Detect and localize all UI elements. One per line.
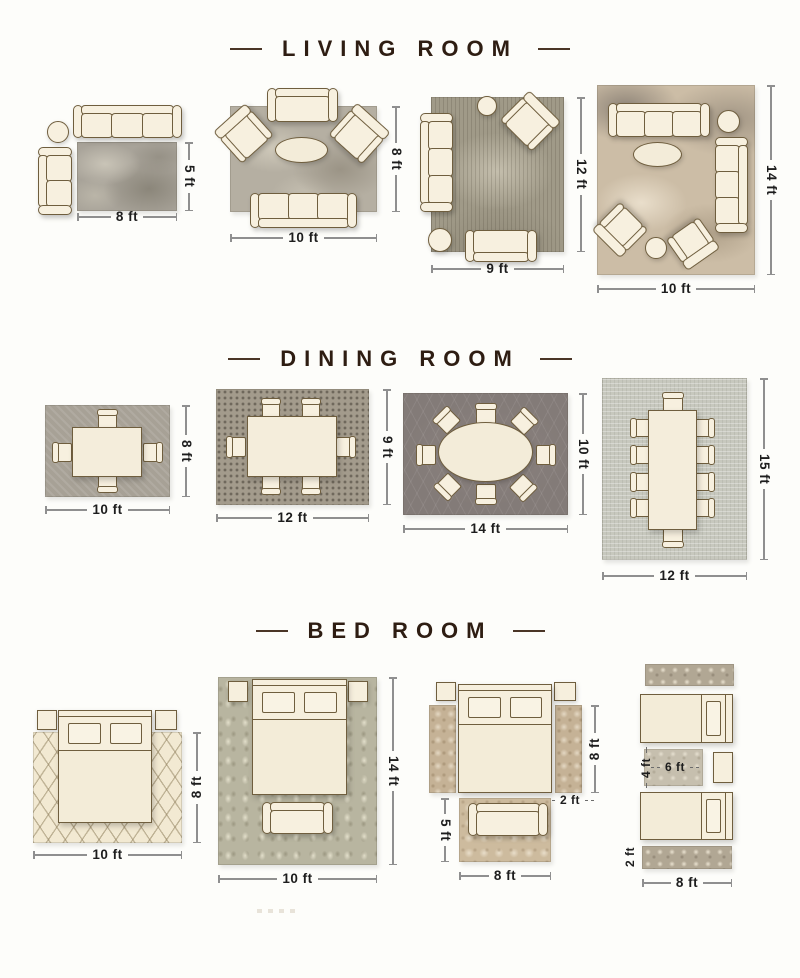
width-dimension: 12 ft: [602, 569, 747, 583]
width-dimension-label: 8 ft: [111, 210, 143, 224]
foot-rug-height-label: 5 ft: [438, 814, 452, 846]
nightstand: [37, 710, 57, 730]
width-dimension: 10 ft: [230, 231, 377, 245]
height-dimension-label: 14 ft: [764, 160, 778, 200]
width-dimension: 8 ft: [642, 876, 732, 890]
dining-chair: [262, 475, 280, 491]
dining-layout-14x10: 10 ft 14 ft: [400, 385, 595, 540]
width-dimension-label: 8 ft: [489, 869, 521, 883]
width-dimension: 14 ft: [403, 522, 568, 536]
dining-chair: [302, 475, 320, 491]
title-dash-right: [540, 358, 572, 361]
dining-layout-10x8: 8 ft 10 ft: [35, 395, 207, 525]
bed: [58, 710, 152, 823]
oval-dining-table: [438, 422, 533, 482]
living-layout-10x8: 8 ft 10 ft: [215, 85, 410, 250]
dining-chair: [336, 437, 352, 457]
height-dimension-label: 12 ft: [574, 154, 588, 194]
loveseat: [465, 230, 537, 262]
bed: [458, 684, 552, 793]
pillow: [510, 697, 543, 718]
height-dimension: 8 ft: [188, 732, 206, 843]
height-dimension: 15 ft: [755, 378, 773, 560]
dining-chair: [56, 443, 72, 462]
dining-chair: [143, 443, 159, 462]
living-layout-8x5: 5 ft 8 ft: [28, 100, 210, 240]
height-dimension-label: 8 ft: [190, 771, 204, 803]
runner-height-label: 2 ft: [624, 842, 636, 872]
width-dimension-label: 12 ft: [272, 511, 312, 525]
height-dimension: 14 ft: [384, 677, 402, 865]
dining-table: [247, 416, 337, 477]
height-dimension-label: 8 ft: [389, 143, 403, 175]
nightstand: [436, 682, 456, 701]
width-dimension-label: 12 ft: [654, 569, 694, 583]
pillow: [706, 701, 721, 736]
height-dimension-label: 14 ft: [386, 751, 400, 791]
section-title-text: LIVING ROOM: [282, 36, 518, 62]
height-dimension: 12 ft: [572, 97, 590, 252]
nightstand: [348, 681, 368, 702]
height-dimension: 14 ft: [762, 85, 780, 275]
width-dimension: 10 ft: [45, 503, 170, 517]
bed-layout-twin: 4 ft 6 ft 2 ft 8 ft: [615, 658, 795, 894]
dining-chair: [695, 419, 711, 437]
title-dash-left: [230, 48, 262, 51]
runner-rug: [642, 846, 732, 869]
nightstand: [155, 710, 177, 730]
pillow: [110, 723, 143, 744]
pillow: [68, 723, 101, 744]
height-dimension: 5 ft: [180, 142, 198, 211]
center-rug-width-label: 6 ft: [660, 761, 690, 773]
chaise: [38, 147, 72, 215]
width-dimension: 9 ft: [431, 262, 564, 276]
sofa: [715, 137, 748, 233]
nightstand: [554, 682, 576, 701]
width-dimension-label: 10 ft: [277, 872, 317, 886]
foot-rug-height-dimension: 5 ft: [436, 798, 454, 862]
title-dash-right: [538, 48, 570, 51]
section-title-text: BED ROOM: [308, 618, 493, 644]
side-table: [717, 110, 740, 133]
side-table: [477, 96, 497, 116]
oval-coffee-table: [275, 137, 328, 163]
rug-size-guide: LIVING ROOM 5 ft 8 ft: [0, 0, 800, 978]
width-dimension-label: 9 ft: [481, 262, 513, 276]
dining-table: [72, 427, 142, 477]
living-layout-10x14: 14 ft 10 ft: [590, 75, 788, 303]
height-dimension-label: 9 ft: [380, 431, 394, 463]
nightstand: [713, 752, 733, 783]
bench: [468, 803, 548, 836]
width-dimension: 8 ft: [77, 210, 177, 224]
living-layout-9x12: 12 ft 9 ft: [405, 90, 597, 280]
dining-layout-12x9: 9 ft 12 ft: [210, 380, 402, 532]
runner-rug: [645, 664, 734, 686]
dining-table: [648, 410, 697, 530]
sofa: [267, 88, 338, 122]
width-dimension-label: 10 ft: [656, 282, 696, 296]
width-dimension-label: 10 ft: [87, 848, 127, 862]
section-title-dining-room: DINING ROOM: [0, 346, 800, 372]
nightstand: [228, 681, 248, 702]
title-dash-left: [228, 358, 260, 361]
section-title-bed-room: BED ROOM: [0, 618, 800, 644]
width-dimension: 10 ft: [218, 872, 377, 886]
dining-chair: [695, 446, 711, 464]
dining-chair: [476, 484, 496, 501]
sofa: [73, 105, 182, 138]
height-dimension: 8 ft: [177, 405, 195, 497]
runner-rug: [555, 705, 582, 793]
pillow: [262, 692, 295, 713]
side-table: [47, 121, 69, 143]
runner-width-dimension: 2 ft: [546, 794, 600, 806]
bed: [252, 679, 347, 795]
bed-layout-10x14: 14 ft 10 ft: [210, 670, 408, 895]
height-dimension-label: 10 ft: [576, 434, 590, 474]
pillow: [706, 799, 721, 833]
title-dash-right: [513, 630, 545, 633]
runner-width-label: 2 ft: [555, 794, 585, 806]
bed-layout-runners: 8 ft 2 ft 5 ft 8 ft: [420, 675, 612, 893]
runner-rug: [429, 705, 456, 793]
pillow: [468, 697, 501, 718]
oval-coffee-table: [633, 142, 682, 167]
sofa: [420, 113, 453, 212]
sofa: [250, 193, 357, 228]
dining-layout-12x15: 15 ft 12 ft: [590, 375, 788, 590]
width-dimension-label: 8 ft: [671, 876, 703, 890]
height-dimension-label: 8 ft: [179, 435, 193, 467]
width-dimension: 10 ft: [597, 282, 755, 296]
width-dimension: 8 ft: [459, 869, 551, 883]
section-title-living-room: LIVING ROOM: [0, 36, 800, 62]
dining-chair: [420, 445, 436, 465]
center-rug-width-dimension: 6 ft: [651, 761, 701, 773]
width-dimension: 10 ft: [33, 848, 182, 862]
height-dimension-label: 15 ft: [757, 449, 771, 489]
dining-chair: [230, 437, 246, 457]
bed-layout-10x8: 8 ft 10 ft: [25, 695, 217, 873]
rug: [77, 142, 177, 211]
sofa: [608, 103, 710, 137]
bench: [262, 802, 333, 834]
section-title-text: DINING ROOM: [280, 346, 520, 372]
runner-height-dimension: 2 ft: [621, 842, 639, 872]
dining-chair: [536, 445, 552, 465]
faint-marks: [257, 909, 297, 914]
ottoman: [645, 237, 667, 259]
twin-bed: [640, 792, 733, 840]
title-dash-left: [256, 630, 288, 633]
dining-chair: [663, 528, 683, 544]
dining-chair: [695, 499, 711, 517]
width-dimension: 12 ft: [216, 511, 369, 525]
width-dimension-label: 10 ft: [283, 231, 323, 245]
width-dimension-label: 14 ft: [465, 522, 505, 536]
runner-height-dimension: 8 ft: [586, 705, 604, 793]
twin-bed: [640, 694, 733, 743]
height-dimension: 8 ft: [387, 106, 405, 212]
dining-chair: [695, 473, 711, 491]
width-dimension-label: 10 ft: [87, 503, 127, 517]
height-dimension: 9 ft: [378, 389, 396, 505]
height-dimension-label: 5 ft: [182, 160, 196, 192]
ottoman: [428, 228, 452, 252]
pillow: [304, 692, 337, 713]
runner-height-label: 8 ft: [588, 733, 602, 765]
